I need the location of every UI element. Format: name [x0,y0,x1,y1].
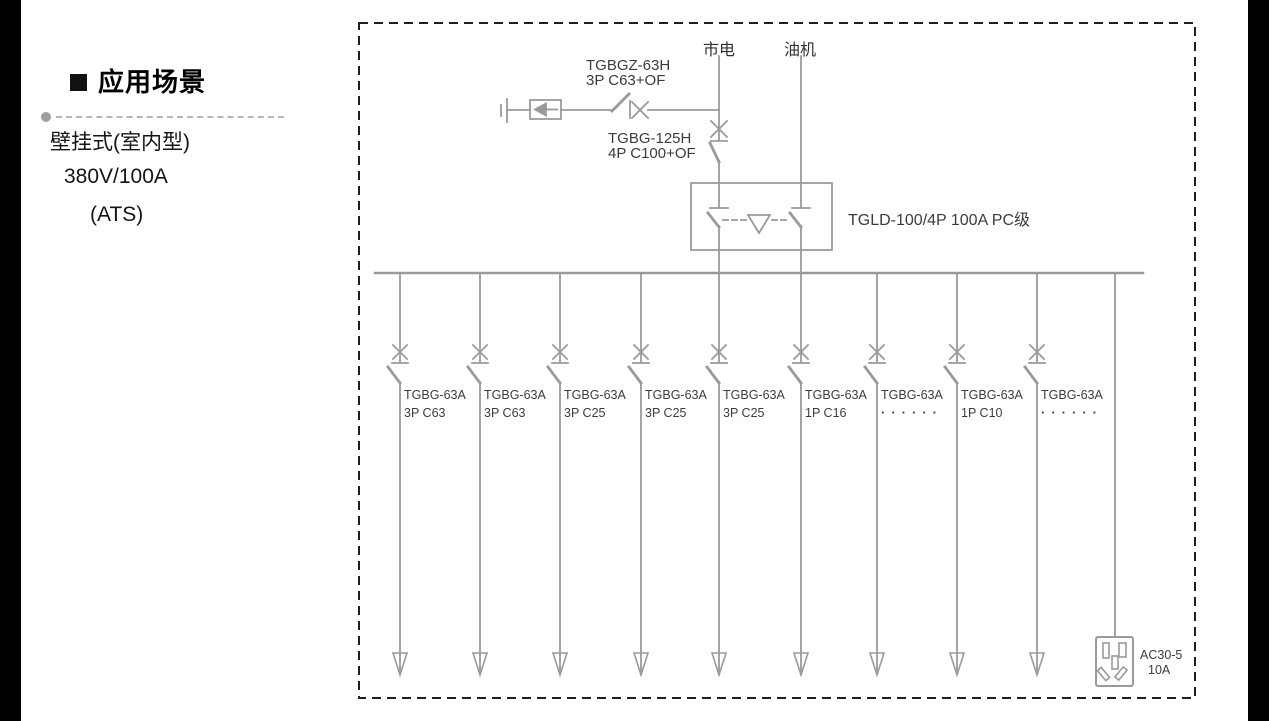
feeder-line [548,274,568,675]
switch-blade-icon [790,213,801,227]
interlock-triangle-icon [748,215,770,233]
feeder-spec: ······ [1041,404,1103,422]
feeder-label: TGBG-63A ······ [881,386,943,422]
socket-icon [1096,637,1133,686]
feeder-line [865,274,885,675]
main-breaker-spec: 4P C100+OF [608,146,696,161]
main-breaker-model: TGBG-125H [608,131,696,146]
single-line-diagram [0,0,1269,721]
breaker-blade-icon [710,143,719,162]
feeder-label: TGBG-63A 3P C25 [564,386,626,422]
feeder-line [707,274,727,675]
feeder-spec: ······ [881,404,943,422]
feeder-label: TGBG-63A 1P C10 [961,386,1023,422]
feeder-branches [388,274,1045,675]
transfer-switch-box [691,183,832,274]
feeder-model: TGBG-63A [484,386,546,404]
socket-model-label: AC30-5 [1140,648,1182,663]
feeder-line [945,274,965,675]
surge-protection-branch [501,94,719,122]
feeder-model: TGBG-63A [564,386,626,404]
main-breaker-label: TGBG-125H 4P C100+OF [608,131,696,161]
breaker-x-icon [632,102,648,118]
surge-breaker-label: TGBGZ-63H 3P C63+OF [586,58,670,88]
diagram-dashed-border [359,23,1195,698]
feeder-label: TGBG-63A 1P C16 [805,386,867,422]
feeder-model: TGBG-63A [404,386,466,404]
feeder-line [789,274,809,675]
transfer-switch-label: TGLD-100/4P 100A PC级 [848,206,1030,230]
feeder-model: TGBG-63A [1041,386,1103,404]
feeder-model: TGBG-63A [961,386,1023,404]
feeder-line [1025,274,1045,675]
mains-label: 市电 [703,36,735,60]
feeder-spec: 3P C25 [723,404,785,422]
spd-arrow-icon [535,104,546,116]
feeder-label: TGBG-63A ······ [1041,386,1103,422]
feeder-model: TGBG-63A [723,386,785,404]
feeder-spec: 3P C63 [404,404,466,422]
feeder-spec: 3P C25 [645,404,707,422]
generator-label: 油机 [784,36,816,60]
feeder-model: TGBG-63A [645,386,707,404]
feeder-line [629,274,649,675]
feeder-line [388,274,408,675]
breaker-blade-icon [612,94,629,111]
feeder-spec: 3P C63 [484,404,546,422]
socket-rating-label: 10A [1148,663,1170,678]
circuit-geometry [375,56,1143,686]
feeder-label: TGBG-63A 3P C63 [404,386,466,422]
feeder-label: TGBG-63A 3P C25 [645,386,707,422]
feeder-label: TGBG-63A 3P C25 [723,386,785,422]
feeder-model: TGBG-63A [805,386,867,404]
slide-page: 应用场景 壁挂式(室内型) 380V/100A (ATS) [0,0,1269,721]
surge-breaker-spec: 3P C63+OF [586,73,670,88]
switch-blade-icon [708,213,719,227]
mains-incoming-line [710,56,727,207]
surge-breaker-model: TGBGZ-63H [586,58,670,73]
feeder-spec: 1P C16 [805,404,867,422]
feeder-line [468,274,488,675]
feeder-model: TGBG-63A [881,386,943,404]
feeder-spec: 3P C25 [564,404,626,422]
feeder-label: TGBG-63A 3P C63 [484,386,546,422]
socket-branch [1096,274,1133,686]
feeder-spec: 1P C10 [961,404,1023,422]
